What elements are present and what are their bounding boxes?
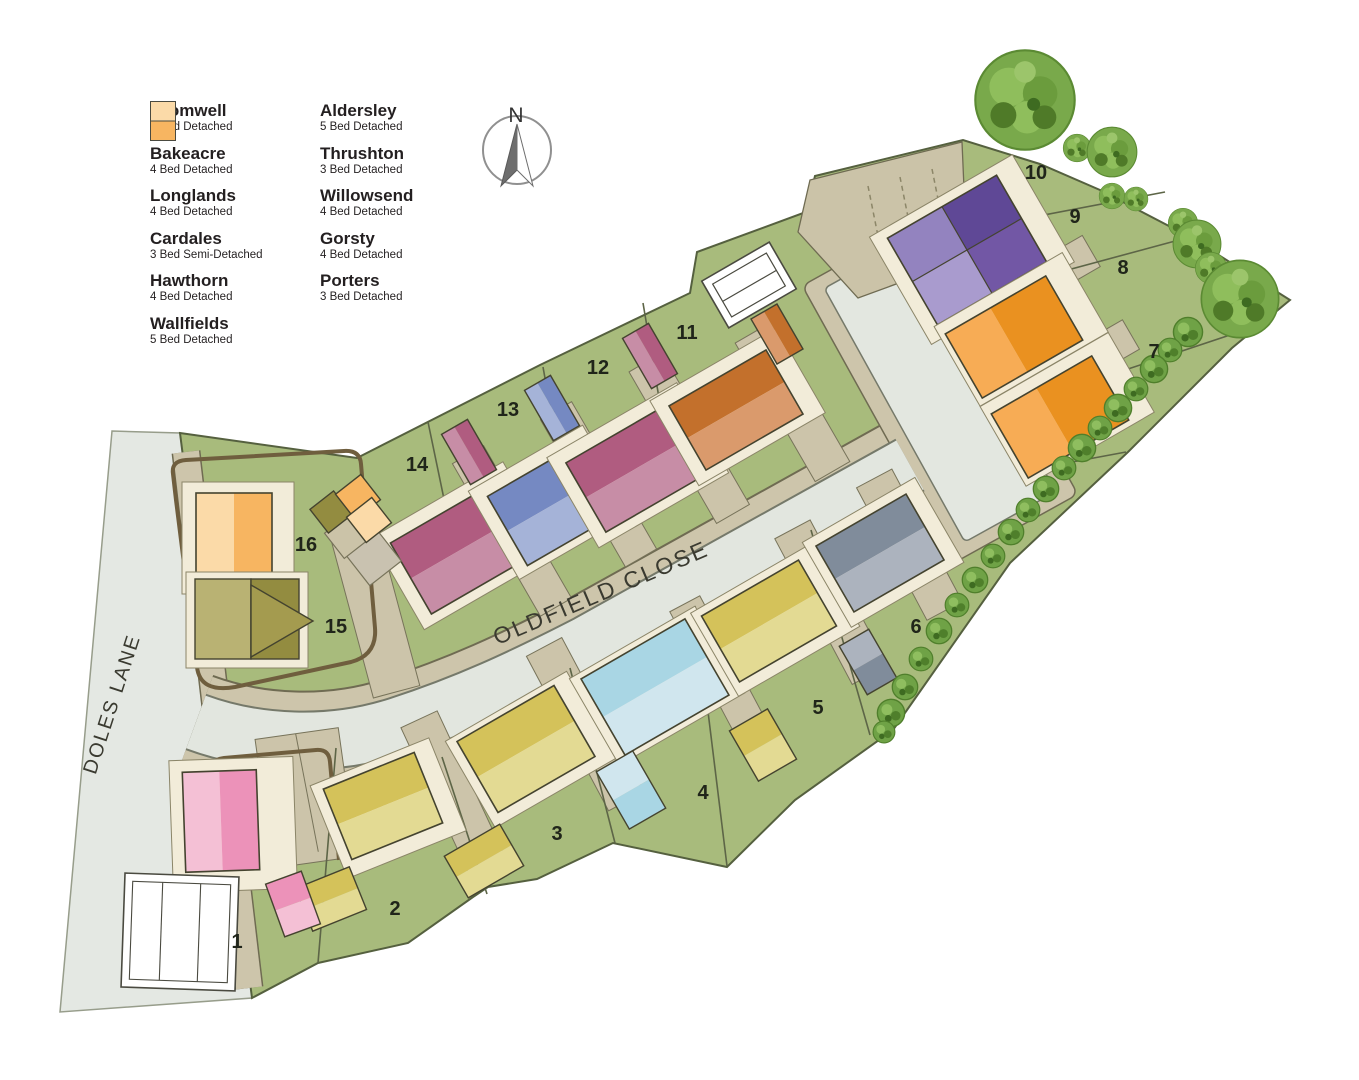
legend-name: Cardales	[150, 230, 263, 247]
plot-label-8: 8	[1117, 257, 1128, 279]
legend-entry-thrushton: Thrushton 3 Bed Detached	[320, 144, 490, 187]
plot-label-4: 4	[697, 782, 709, 804]
legend-type: 5 Bed Detached	[320, 122, 402, 134]
legend-entry-porters: Porters 3 Bed Detached	[320, 271, 490, 314]
house-types-legend: Cromwell 4 Bed Detached Bakeacre 4 Bed D…	[150, 101, 490, 357]
legend-entry-bakeacre: Bakeacre 4 Bed Detached	[150, 144, 320, 187]
legend-entry-hawthorn: Hawthorn 4 Bed Detached	[150, 271, 320, 314]
plot-label-7: 7	[1148, 341, 1159, 363]
legend-name: Gorsty	[320, 230, 402, 247]
plot-label-5: 5	[812, 697, 823, 719]
house-plot1-hawthorn	[169, 756, 298, 892]
legend-name: Longlands	[150, 187, 236, 204]
plot-label-14: 14	[406, 454, 429, 476]
plot-label-12: 12	[587, 357, 609, 379]
plot-label-9: 9	[1069, 206, 1080, 228]
legend-entry-gorsty: Gorsty 4 Bed Detached	[320, 229, 490, 272]
plot-label-1: 1	[231, 931, 242, 953]
legend-entry-aldersley: Aldersley 5 Bed Detached	[320, 101, 490, 144]
plot-label-2: 2	[389, 898, 400, 920]
visitor-parking	[121, 873, 239, 991]
legend-name: Wallfields	[150, 315, 232, 332]
legend-name: Aldersley	[320, 102, 402, 119]
legend-type: 3 Bed Detached	[320, 165, 404, 177]
legend-entry-wallfields: Wallfields 5 Bed Detached	[150, 314, 320, 357]
legend-type: 4 Bed Detached	[150, 165, 232, 177]
legend-type: 4 Bed Detached	[320, 250, 402, 262]
compass-rose: N	[483, 104, 551, 186]
legend-type: 3 Bed Semi-Detached	[150, 250, 263, 262]
plot-label-10: 10	[1025, 162, 1047, 184]
legend-type: 4 Bed Detached	[320, 207, 413, 219]
legend-name: Bakeacre	[150, 145, 232, 162]
legend-type: 5 Bed Detached	[150, 335, 232, 347]
plot-label-16: 16	[295, 534, 317, 556]
legend-name: Porters	[320, 272, 402, 289]
house-plot15-gorsty	[186, 572, 313, 668]
plot-label-3: 3	[551, 823, 562, 845]
legend-type: 4 Bed Detached	[150, 207, 236, 219]
legend-name: Hawthorn	[150, 272, 232, 289]
plot-label-15: 15	[325, 616, 347, 638]
legend-type: 3 Bed Detached	[320, 292, 402, 304]
legend-entry-longlands: Longlands 4 Bed Detached	[150, 186, 320, 229]
legend-type: 4 Bed Detached	[150, 292, 232, 304]
site-plan-page: 1 2 3 4 5 6 7 8 9 10 11 12 13 14 15 16 O…	[0, 0, 1359, 1080]
legend-name: Thrushton	[320, 145, 404, 162]
compass-north-label: N	[508, 104, 523, 127]
plot-label-13: 13	[497, 399, 519, 421]
legend-name: Willowsend	[320, 187, 413, 204]
plot-label-6: 6	[910, 616, 921, 638]
plot-label-11: 11	[676, 322, 697, 344]
legend-entry-willowsend: Willowsend 4 Bed Detached	[320, 186, 490, 229]
legend-entry-cardales: Cardales 3 Bed Semi-Detached	[150, 229, 320, 272]
porters-swatch-icon	[150, 101, 176, 141]
